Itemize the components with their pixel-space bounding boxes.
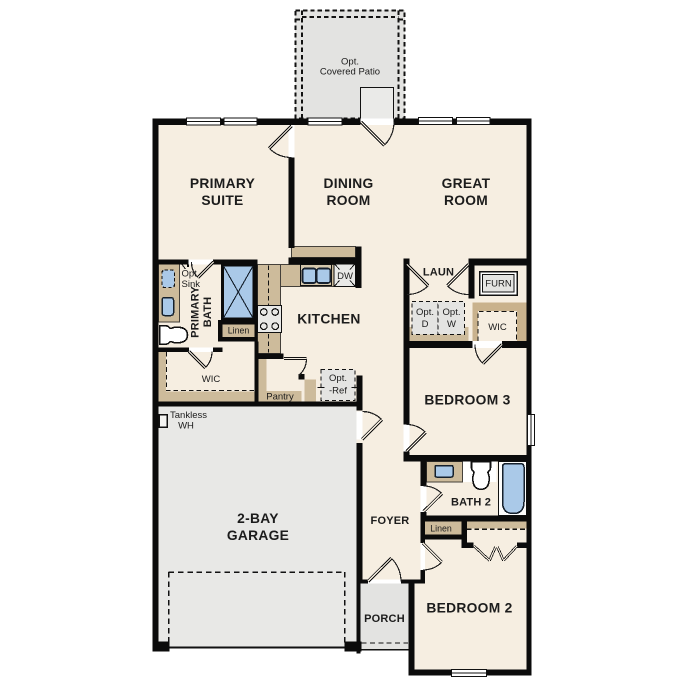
svg-text:PORCH: PORCH (364, 613, 405, 625)
svg-text:2-BAY: 2-BAY (237, 511, 279, 526)
svg-text:Linen: Linen (430, 524, 452, 534)
svg-text:WIC: WIC (488, 322, 507, 333)
svg-text:GREAT: GREAT (442, 176, 491, 191)
svg-text:Pantry: Pantry (266, 392, 294, 403)
svg-text:BEDROOM 3: BEDROOM 3 (424, 393, 510, 408)
svg-text:KITCHEN: KITCHEN (297, 312, 360, 327)
svg-text:Opt.: Opt. (329, 373, 347, 384)
svg-text:WH: WH (178, 421, 194, 432)
svg-text:BATH 2: BATH 2 (451, 497, 491, 509)
svg-text:Opt.: Opt. (416, 307, 434, 318)
svg-text:ROOM: ROOM (326, 193, 370, 208)
svg-text:FOYER: FOYER (371, 515, 410, 527)
svg-text:DW: DW (337, 271, 353, 282)
svg-text:D: D (422, 319, 429, 330)
svg-text:Covered Patio: Covered Patio (320, 67, 380, 78)
svg-text:Tankless: Tankless (170, 410, 207, 421)
svg-text:W: W (447, 319, 456, 330)
svg-text:Linen: Linen (228, 326, 250, 336)
svg-text:PRIMARY: PRIMARY (190, 286, 202, 338)
svg-text:GARAGE: GARAGE (227, 528, 289, 543)
svg-text:FURN: FURN (485, 279, 512, 290)
svg-text:BEDROOM 2: BEDROOM 2 (426, 601, 512, 616)
svg-text:Opt.: Opt. (182, 269, 200, 280)
svg-text:BATH: BATH (202, 297, 214, 328)
svg-text:WIC: WIC (202, 374, 221, 385)
svg-text:Opt.: Opt. (443, 307, 461, 318)
svg-text:LAUN: LAUN (423, 267, 454, 279)
svg-text:DINING: DINING (323, 176, 373, 191)
svg-text:PRIMARY: PRIMARY (190, 176, 255, 191)
svg-text:Sink: Sink (182, 279, 201, 290)
svg-text:ROOM: ROOM (444, 193, 488, 208)
svg-text:SUITE: SUITE (201, 193, 243, 208)
svg-text:-Ref: -Ref (329, 386, 347, 397)
